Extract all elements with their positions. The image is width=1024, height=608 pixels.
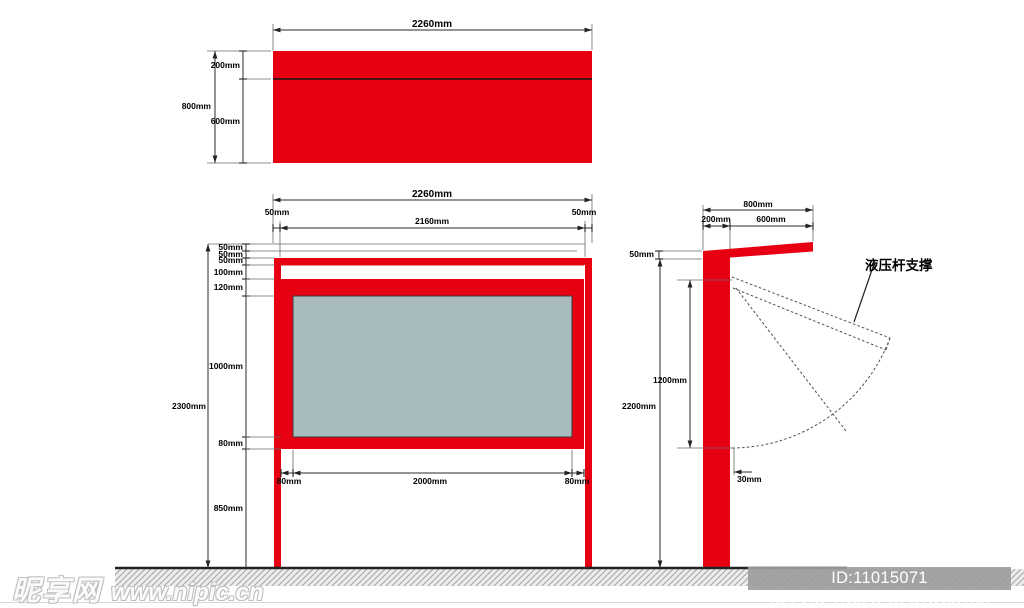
dim-chain-6: 80mm bbox=[218, 438, 243, 448]
watermark-site-url: www.nipic.cn bbox=[111, 579, 263, 607]
hydraulic-rod-label: 液压杆支撑 bbox=[865, 257, 933, 273]
dim-front-total-height: 2300mm bbox=[172, 401, 206, 411]
dim-side-canopy-depth: 600mm bbox=[756, 214, 786, 224]
front-view-top-dimensions: 2260mm 50mm 2160mm 50mm bbox=[208, 189, 597, 258]
title-slot bbox=[281, 266, 584, 280]
front-view-left-dimensions: 50mm 50mm 50mm 100mm 120mm 1000mm 80mm 8… bbox=[172, 242, 281, 568]
dim-chain-5: 1000mm bbox=[209, 361, 243, 371]
dim-top-upper: 200mm bbox=[211, 60, 241, 70]
top-view-panel bbox=[273, 51, 592, 163]
technical-drawing-canvas: 2260mm 800mm 200mm 600mm 2260mm bbox=[0, 0, 1024, 608]
dim-front-left-post: 50mm bbox=[265, 207, 290, 217]
dim-chain-3: 100mm bbox=[214, 267, 244, 277]
watermark: 昵享网 www.nipic.cn bbox=[12, 569, 263, 608]
front-view-board bbox=[274, 258, 592, 568]
dim-side-canopy-thickness: 50mm bbox=[629, 249, 654, 259]
dim-top-total-height: 800mm bbox=[182, 101, 212, 111]
annotation-callout: 液压杆支撑 bbox=[854, 257, 933, 322]
front-view-bottom-dimensions: 80mm 2000mm 80mm bbox=[277, 450, 590, 486]
swing-arc bbox=[732, 338, 890, 448]
dim-front-inner-width: 2160mm bbox=[415, 216, 449, 226]
right-post bbox=[585, 258, 592, 568]
top-rail bbox=[274, 258, 592, 265]
dim-side-post-height: 2200mm bbox=[622, 401, 656, 411]
top-view: 2260mm 800mm 200mm 600mm bbox=[182, 19, 592, 163]
dim-glass-left: 80mm bbox=[277, 476, 302, 486]
dim-glass-width: 2000mm bbox=[413, 476, 447, 486]
dim-top-width: 2260mm bbox=[412, 19, 452, 30]
dim-glass-right: 80mm bbox=[565, 476, 590, 486]
side-view: 800mm 200mm 600mm 50mm 2200mm 1200mm bbox=[622, 199, 933, 568]
side-post bbox=[703, 252, 730, 569]
dim-side-post-depth: 200mm bbox=[701, 214, 731, 224]
left-post bbox=[274, 258, 281, 568]
dim-front-right-post: 50mm bbox=[572, 207, 597, 217]
dim-side-total-depth: 800mm bbox=[743, 199, 773, 209]
glass-panel bbox=[293, 296, 572, 437]
side-view-height-dimensions: 2200mm 1200mm 30mm bbox=[622, 259, 762, 568]
drawing-svg: 2260mm 800mm 200mm 600mm 2260mm bbox=[0, 0, 1024, 608]
door-swing-diagram bbox=[732, 277, 890, 448]
leader-line bbox=[854, 267, 873, 322]
dim-chain-2: 50mm bbox=[218, 255, 243, 265]
image-id-badge: ID:11015071 NO:20251009210928206108 bbox=[748, 567, 1011, 590]
watermark-site-name: 昵享网 bbox=[12, 569, 102, 608]
dim-side-door-height: 1200mm bbox=[653, 375, 687, 385]
hydraulic-rod-line bbox=[736, 288, 846, 431]
dim-chain-4: 120mm bbox=[214, 282, 244, 292]
dim-chain-7: 850mm bbox=[214, 503, 244, 513]
front-view: 2260mm 50mm 2160mm 50mm bbox=[172, 189, 597, 568]
dim-top-lower: 600mm bbox=[211, 116, 241, 126]
dim-front-width: 2260mm bbox=[412, 189, 452, 200]
dim-side-door-gap: 30mm bbox=[737, 474, 762, 484]
